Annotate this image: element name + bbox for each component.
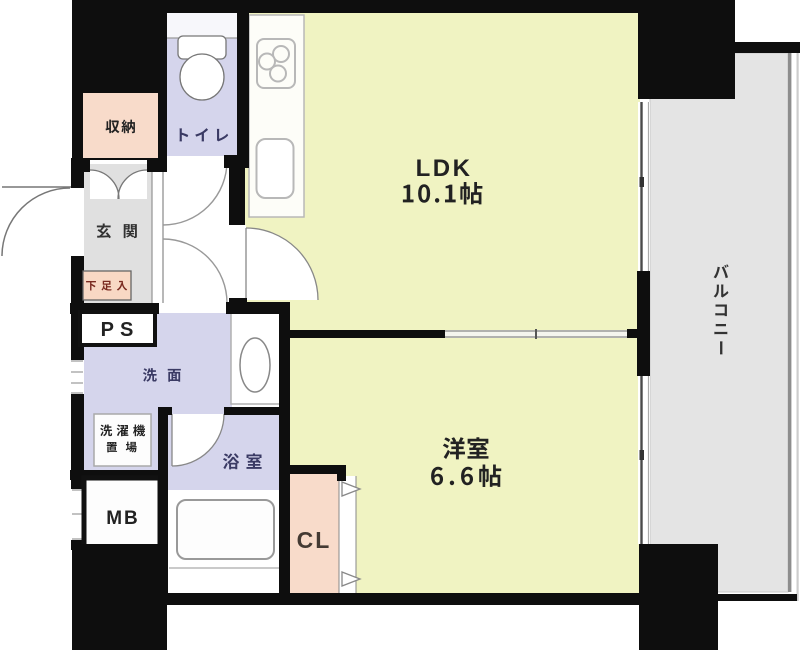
svg-text:MB: MB: [106, 508, 140, 529]
svg-text:LDK: LDK: [416, 155, 473, 182]
svg-text:CL: CL: [297, 527, 332, 553]
svg-text:PS: PS: [101, 319, 140, 341]
